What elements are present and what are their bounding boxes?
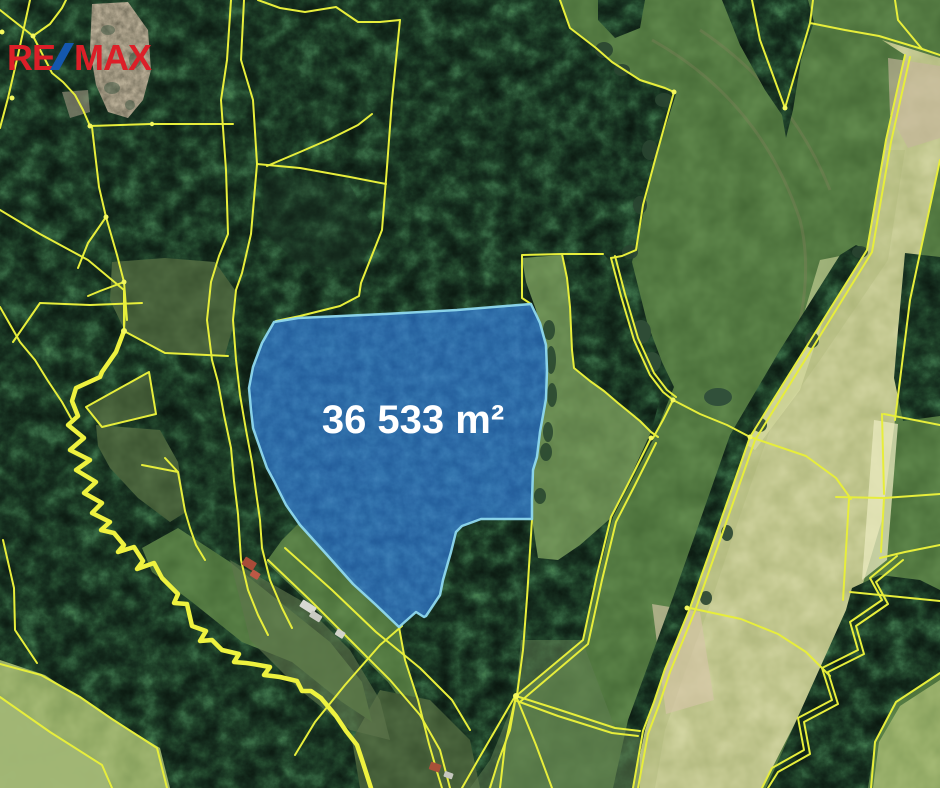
svg-text:MAX: MAX	[74, 37, 152, 78]
svg-text:RE: RE	[7, 37, 55, 78]
svg-text:36 533 m²: 36 533 m²	[322, 398, 504, 442]
